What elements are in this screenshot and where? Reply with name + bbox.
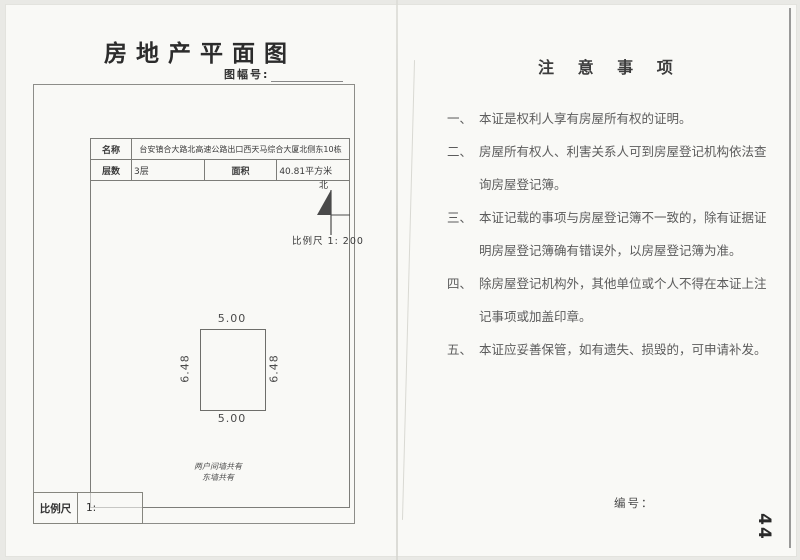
sheet-number-field: 图幅号: (224, 66, 343, 82)
scale-box-value: 1: (78, 493, 142, 523)
notice-item-text: 除房屋登记机构外，其他单位或个人不得在本证上注记事项或加盖印章。 (479, 267, 777, 333)
notice-item-text: 本证记载的事项与房屋登记簿不一致的，除有证据证明房屋登记簿确有错误外，以房屋登记… (479, 201, 777, 267)
floorplan-outline (200, 329, 266, 411)
serial-number-label: 编号： (614, 495, 655, 511)
sheet-number-blank-line (271, 67, 343, 82)
notice-item-number: 四、 (447, 267, 479, 333)
notice-item: 一、 本证是权利人享有房屋所有权的证明。 (447, 102, 777, 135)
notice-item-number: 三、 (447, 201, 479, 267)
sheet-number-label: 图幅号: (224, 66, 269, 82)
notice-item: 二、 房屋所有权人、利害关系人可到房屋登记机构依法查询房屋登记簿。 (447, 135, 777, 201)
notice-item: 四、 除房屋登记机构外，其他单位或个人不得在本证上注记事项或加盖印章。 (447, 267, 777, 333)
floors-value-cell: 3层 (132, 160, 205, 181)
name-value-cell: 台安镇合大路北高速公路出口西天马综合大厦北侧东10栋 (132, 139, 350, 160)
notice-item-text: 本证应妥善保管，如有遗失、损毁的，可申请补发。 (479, 333, 777, 366)
name-label-cell: 名称 (91, 139, 132, 160)
plan-scale-note: 比例尺 1: 200 (292, 233, 364, 247)
page-number: 44 (754, 513, 774, 541)
floors-label-cell: 层数 (91, 160, 132, 181)
area-label-cell: 面积 (204, 160, 277, 181)
scanned-booklet-spread: 房地产平面图 图幅号: 名称 台安镇合大路北高速公路出口西天马综合大厦北侧东10… (0, 0, 800, 560)
center-fold-line (396, 0, 398, 560)
notice-item: 五、 本证应妥善保管，如有遗失、损毁的，可申请补发。 (447, 333, 777, 366)
property-info-table: 名称 台安镇合大路北高速公路出口西天马综合大厦北侧东10栋 层数 3层 面积 4… (90, 138, 350, 181)
scale-box-label: 比例尺 (34, 493, 78, 523)
notice-item-number: 五、 (447, 333, 479, 366)
notice-item-text: 本证是权利人享有房屋所有权的证明。 (479, 102, 777, 135)
dimension-bottom: 5.00 (200, 412, 264, 425)
shared-wall-note-line2: 东墙共有 (148, 472, 288, 483)
scale-box: 比例尺 1: (33, 492, 143, 524)
booklet-right-edge (789, 8, 791, 548)
dimension-top: 5.00 (200, 312, 264, 325)
north-label: 北 (319, 178, 329, 191)
notice-item-number: 一、 (447, 102, 479, 135)
dimension-left: 6.48 (179, 347, 192, 391)
shared-wall-note-line1: 两户间墙共有 (148, 461, 288, 472)
shared-wall-note: 两户间墙共有 东墙共有 (148, 461, 288, 483)
notice-item-text: 房屋所有权人、利害关系人可到房屋登记机构依法查询房屋登记簿。 (479, 135, 777, 201)
page-title-floorplan: 房地产平面图 (104, 34, 296, 68)
table-row: 名称 台安镇合大路北高速公路出口西天马综合大厦北侧东10栋 (91, 139, 350, 160)
notice-item: 三、 本证记载的事项与房屋登记簿不一致的，除有证据证明房屋登记簿确有错误外，以房… (447, 201, 777, 267)
notice-list: 一、 本证是权利人享有房屋所有权的证明。 二、 房屋所有权人、利害关系人可到房屋… (447, 102, 777, 366)
page-title-notes: 注 意 事 项 (538, 54, 682, 78)
dimension-right: 6.48 (268, 347, 281, 391)
notice-item-number: 二、 (447, 135, 479, 201)
